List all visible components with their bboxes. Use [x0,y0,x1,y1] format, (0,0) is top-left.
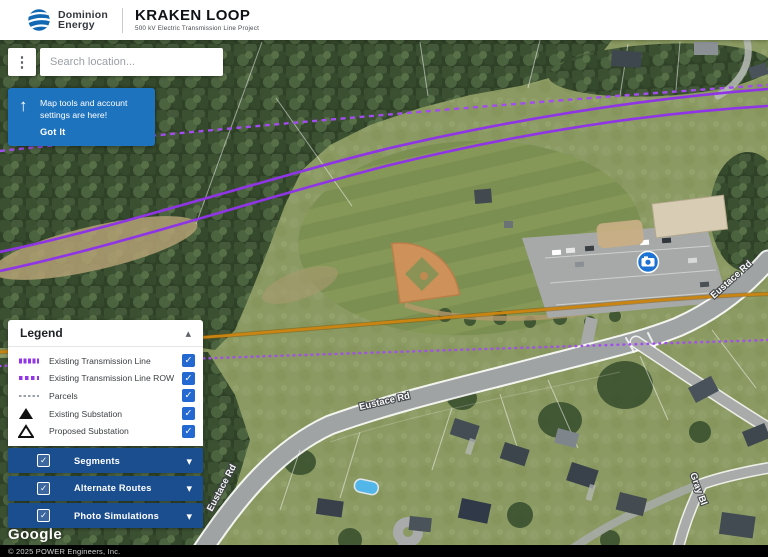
dominion-energy-logo: Dominion Energy [26,7,108,33]
legend-item-parcels: Parcels [18,387,195,405]
legend-checkbox-proposed-substation[interactable] [182,425,195,438]
dominion-globe-icon [26,7,52,33]
legend-checkbox-row[interactable] [182,372,195,385]
legend-checkbox-existing-line[interactable] [182,354,195,367]
segments-panel-bar[interactable]: Segments [8,448,203,473]
google-logo[interactable]: Google [8,526,62,543]
brand-name-line2: Energy [58,20,108,31]
search-input[interactable] [40,48,223,76]
search-box [40,48,223,76]
copyright-text: © 2025 POWER Engineers, Inc. [8,547,120,556]
app-window: Eustace Rd Eustace Rd Eustace Rd Gray Bl… [0,0,768,557]
legend-checkbox-parcels[interactable] [182,389,195,402]
app-header: Dominion Energy KRAKEN LOOP 500 kV Elect… [0,0,768,40]
legend-item-proposed-substation: Proposed Substation [18,422,195,440]
pavilion [474,189,492,204]
photo-simulation-marker[interactable] [638,252,659,273]
onboarding-tooltip: Map tools and account settings are here!… [8,88,155,146]
legend-panel: Legend Existing Transmission Line Existi… [8,320,203,446]
legend-item-existing-substation: Existing Substation [18,405,195,423]
legend-item-label: Parcels [44,391,182,401]
copyright-bar: © 2025 POWER Engineers, Inc. [0,545,768,557]
segments-label: Segments [74,456,120,466]
project-subtitle: 500 kV Electric Transmission Line Projec… [135,25,259,32]
legend-title: Legend [20,326,63,340]
shed [504,221,513,228]
header-divider [122,8,123,33]
photo-simulations-panel-bar[interactable]: Photo Simulations [8,503,203,528]
map-tools-menu-button[interactable] [8,48,36,76]
alternate-routes-expand-icon[interactable] [186,479,192,497]
project-title: KRAKEN LOOP [135,8,259,23]
legend-item-label: Existing Transmission Line [44,356,182,366]
photo-simulations-label: Photo Simulations [74,511,159,521]
alternate-routes-panel-bar[interactable]: Alternate Routes [8,476,203,501]
legend-item-existing-transmission-line: Existing Transmission Line [18,352,195,370]
black-outline-triangle-swatch [18,424,44,438]
up-arrow-icon [19,96,28,116]
photo-simulations-expand-icon[interactable] [186,507,192,525]
legend-item-label: Existing Transmission Line ROW [44,373,182,383]
legend-item-label: Existing Substation [44,409,182,419]
segments-checkbox[interactable] [37,454,50,467]
legend-item-label: Proposed Substation [44,426,182,436]
gray-dashed-line-swatch [18,392,44,400]
tooltip-text-line1: Map tools and account [40,97,147,109]
legend-item-existing-transmission-line-row: Existing Transmission Line ROW [18,370,195,388]
legend-checkbox-existing-substation[interactable] [182,407,195,420]
alternate-routes-checkbox[interactable] [37,482,50,495]
purple-dashed-line-swatch [18,374,44,382]
legend-collapse-button[interactable] [185,324,191,342]
alternate-routes-label: Alternate Routes [74,483,152,493]
segments-expand-icon[interactable] [186,452,192,470]
got-it-button[interactable]: Got It [40,127,65,137]
playground [596,219,644,249]
photo-simulations-checkbox[interactable] [37,509,50,522]
purple-solid-line-swatch [18,357,44,365]
black-filled-triangle-swatch [18,407,44,420]
tooltip-text-line2: settings are here! [40,109,147,121]
